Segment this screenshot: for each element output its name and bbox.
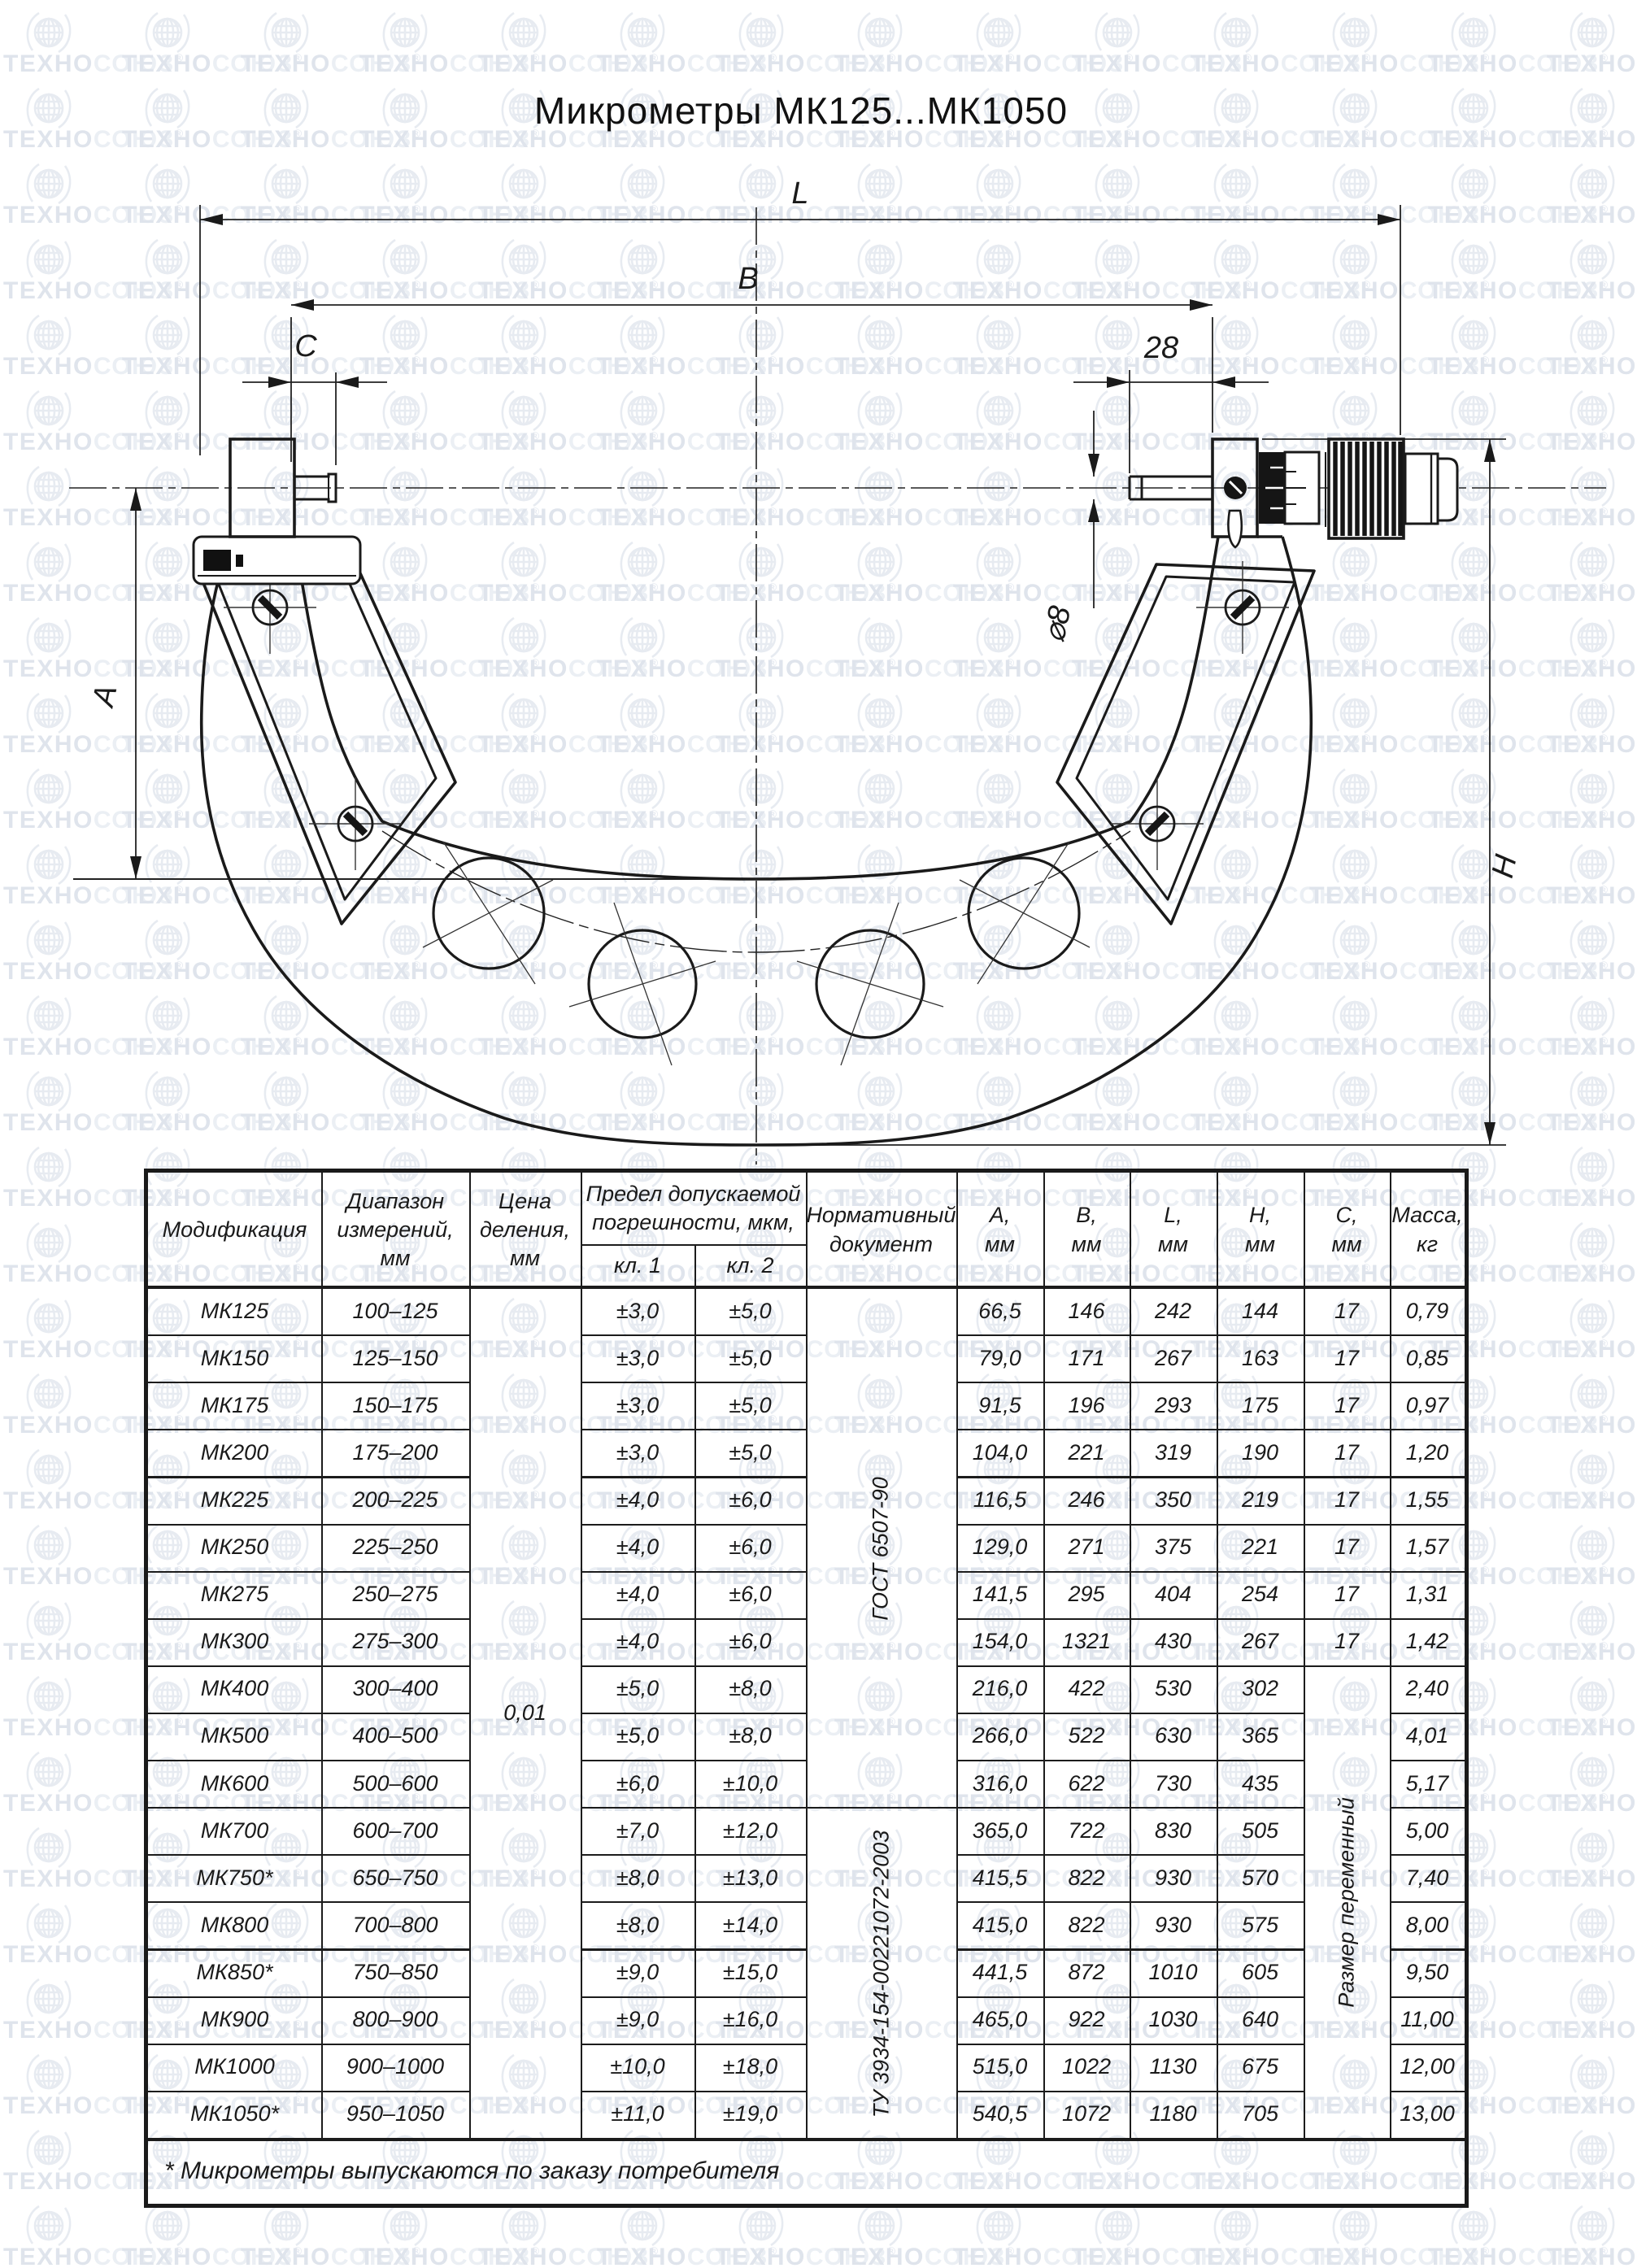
- cell-h-8: 302: [1217, 1665, 1304, 1713]
- globe-icon: [1571, 2206, 1613, 2245]
- globe-icon: [28, 1450, 70, 1489]
- globe-icon: [146, 2206, 189, 2245]
- grid-line: [956, 1571, 1304, 1573]
- cell-mod-15: МК900: [148, 1996, 321, 2044]
- globe-icon: [1571, 1450, 1613, 1489]
- cell-c-5: 17: [1304, 1524, 1390, 1571]
- grid-line: [148, 1571, 469, 1573]
- cell-mod-12: МК750*: [148, 1854, 321, 1901]
- grid-line: [1304, 1571, 1390, 1573]
- grid-line: [956, 1807, 1304, 1809]
- grid-line: [148, 2044, 469, 2045]
- dimension-A: [73, 488, 760, 879]
- cell-h-0: 144: [1217, 1287, 1304, 1334]
- cell-kl1-1: ±3,0: [581, 1334, 694, 1382]
- cell-kl2-5: ±6,0: [694, 1524, 806, 1571]
- dim-label-C: C: [294, 329, 317, 363]
- spec-table: Модификация Диапазон измерений, мм Цена …: [144, 1169, 1469, 2208]
- dimension-28: [1073, 370, 1269, 473]
- cell-kl2-7: ±6,0: [694, 1618, 806, 1665]
- grid-line: [581, 1244, 806, 1246]
- cell-l-9: 630: [1130, 1713, 1217, 1760]
- globe-icon: [977, 2206, 1020, 2245]
- cell-l-1: 267: [1130, 1334, 1217, 1382]
- header-col-b: В, мм: [1043, 1173, 1130, 1287]
- cell-l-0: 242: [1130, 1287, 1217, 1334]
- grid-line: [956, 1618, 1304, 1620]
- cell-h-17: 705: [1217, 2091, 1304, 2138]
- cell-h-3: 190: [1217, 1429, 1304, 1476]
- globe-icon: [1571, 1677, 1613, 1716]
- dim-label-dia8: ⌀8: [1037, 603, 1078, 646]
- cell-kl1-8: ±5,0: [581, 1665, 694, 1713]
- header-document: Нормативный документ: [806, 1173, 956, 1287]
- cell-kl2-10: ±10,0: [694, 1760, 806, 1807]
- watermark-text: ТЕХНОСОЮЗ®: [1547, 2017, 1637, 2044]
- grid-line: [1390, 1334, 1465, 1336]
- cell-a-16: 515,0: [956, 2044, 1043, 2091]
- cell-b-3: 221: [1043, 1429, 1130, 1476]
- cell-b-2: 196: [1043, 1382, 1130, 1429]
- watermark-text: ТЕХНОСОЮЗ®: [1547, 1639, 1637, 1665]
- dim-label-L: L: [791, 176, 808, 211]
- cell-h-6: 254: [1217, 1571, 1304, 1618]
- grid-line: [148, 1854, 469, 1856]
- cell-b-16: 1022: [1043, 2044, 1130, 2091]
- cell-mod-7: МК300: [148, 1618, 321, 1665]
- cell-l-5: 375: [1130, 1524, 1217, 1571]
- watermark-text: ТЕХНОСОЮЗ®: [1547, 1487, 1637, 1514]
- grid-line: [148, 1286, 1465, 1289]
- cell-mod-8: МК400: [148, 1665, 321, 1713]
- grid-line: [581, 1524, 806, 1526]
- globe-icon: [28, 2131, 70, 2170]
- header-col-l: L, мм: [1130, 1173, 1217, 1287]
- grid-line: [469, 1173, 471, 2138]
- cell-mass-7: 1,42: [1390, 1618, 1465, 1665]
- cell-doc-gost: ГОСТ 6507-90: [806, 1287, 956, 1810]
- cell-mass-14: 9,50: [1390, 1948, 1465, 1996]
- cell-division-value: 0,01: [469, 1287, 581, 2138]
- grid-line: [1390, 1429, 1465, 1430]
- cell-kl1-3: ±3,0: [581, 1429, 694, 1476]
- grid-line: [321, 1173, 323, 2138]
- cell-l-16: 1130: [1130, 2044, 1217, 2091]
- cell-a-8: 216,0: [956, 1665, 1043, 1713]
- cell-range-4: 200–225: [321, 1476, 469, 1523]
- cell-b-0: 146: [1043, 1287, 1130, 1334]
- cell-b-17: 1072: [1043, 2091, 1130, 2138]
- grid-line: [1390, 1996, 1465, 1998]
- grid-line: [1217, 1173, 1218, 2138]
- globe-icon: [28, 1526, 70, 1565]
- cell-b-15: 922: [1043, 1996, 1130, 2044]
- dimension-C: [242, 372, 387, 465]
- grid-line: [1304, 1173, 1305, 2138]
- cell-a-10: 316,0: [956, 1760, 1043, 1807]
- cell-h-16: 675: [1217, 2044, 1304, 2091]
- watermark-text: ТЕХНОСОЮЗ®: [1547, 1714, 1637, 1741]
- cell-h-13: 575: [1217, 1901, 1304, 1948]
- technical-drawing: Микрометры МК125...МК1050 L B: [0, 0, 1637, 1167]
- cell-mod-2: МК175: [148, 1382, 321, 1429]
- grid-line: [581, 1476, 806, 1478]
- cell-kl1-12: ±8,0: [581, 1854, 694, 1901]
- globe-icon: [621, 2206, 664, 2245]
- grid-line: [148, 1948, 469, 1950]
- grid-line: [581, 1996, 806, 1998]
- grid-line: [581, 1571, 806, 1573]
- cell-kl1-5: ±4,0: [581, 1524, 694, 1571]
- grid-line: [148, 1618, 469, 1620]
- cell-b-13: 822: [1043, 1901, 1130, 1948]
- globe-icon: [1452, 2206, 1495, 2245]
- globe-icon: [740, 2206, 782, 2245]
- cell-c-6: 17: [1304, 1571, 1390, 1618]
- grid-line: [148, 1334, 469, 1336]
- grid-line: [1390, 1571, 1465, 1573]
- grid-line: [581, 1173, 582, 2138]
- globe-icon: [1215, 2206, 1257, 2245]
- page-title: Микрометры МК125...МК1050: [534, 89, 1068, 132]
- cell-b-9: 522: [1043, 1713, 1130, 1760]
- watermark-text: ТЕХНОСОЮЗ®: [1547, 1563, 1637, 1590]
- globe-icon: [28, 1374, 70, 1413]
- header-class1: кл. 1: [581, 1244, 694, 1287]
- cell-mass-11: 5,00: [1390, 1807, 1465, 1854]
- cell-range-6: 250–275: [321, 1571, 469, 1618]
- cell-mod-1: МК150: [148, 1334, 321, 1382]
- cell-mass-17: 13,00: [1390, 2091, 1465, 2138]
- cell-mass-2: 0,97: [1390, 1382, 1465, 1429]
- grid-line: [581, 1901, 806, 1903]
- cell-kl1-9: ±5,0: [581, 1713, 694, 1760]
- cell-mass-3: 1,20: [1390, 1429, 1465, 1476]
- grid-line: [1304, 1476, 1390, 1478]
- cell-range-15: 800–900: [321, 1996, 469, 2044]
- globe-icon: [1571, 1828, 1613, 1867]
- cell-kl2-17: ±19,0: [694, 2091, 806, 2138]
- globe-icon: [1571, 1752, 1613, 1791]
- watermark-text: ТЕХНОСОЮЗ®: [1547, 1260, 1637, 1287]
- header-mass: Масса, кг: [1390, 1173, 1465, 1287]
- cell-range-16: 900–1000: [321, 2044, 469, 2091]
- cell-doc-tu: ТУ 3934-154-00221072-2003: [806, 1810, 956, 2138]
- globe-icon: [859, 2206, 901, 2245]
- cell-kl1-16: ±10,0: [581, 2044, 694, 2091]
- grid-line: [1390, 1854, 1465, 1856]
- cell-mod-3: МК200: [148, 1429, 321, 1476]
- cell-mod-10: МК600: [148, 1760, 321, 1807]
- cell-c-4: 17: [1304, 1476, 1390, 1523]
- cell-range-1: 125–150: [321, 1334, 469, 1382]
- watermark-text: ТЕХНОСОЮЗ®: [1547, 1412, 1637, 1439]
- cell-range-5: 225–250: [321, 1524, 469, 1571]
- globe-icon: [28, 1979, 70, 2018]
- dimension-L: [200, 205, 1400, 455]
- grid-line: [956, 1948, 1304, 1950]
- globe-icon: [1571, 2131, 1613, 2170]
- cell-kl2-13: ±14,0: [694, 1901, 806, 1948]
- cell-a-14: 441,5: [956, 1948, 1043, 1996]
- cell-a-6: 141,5: [956, 1571, 1043, 1618]
- cell-h-12: 570: [1217, 1854, 1304, 1901]
- cell-range-13: 700–800: [321, 1901, 469, 1948]
- cell-range-9: 400–500: [321, 1713, 469, 1760]
- cell-c-2: 17: [1304, 1382, 1390, 1429]
- dimension-H: [763, 439, 1506, 1145]
- cell-mass-9: 4,01: [1390, 1713, 1465, 1760]
- cell-a-7: 154,0: [956, 1618, 1043, 1665]
- cell-kl2-16: ±18,0: [694, 2044, 806, 2091]
- cell-kl2-4: ±6,0: [694, 1476, 806, 1523]
- cell-a-17: 540,5: [956, 2091, 1043, 2138]
- grid-line: [148, 1760, 469, 1761]
- globe-icon: [28, 1752, 70, 1791]
- watermark-text: ТЕХНОСОЮЗ®: [1547, 2244, 1637, 2268]
- cell-kl2-11: ±12,0: [694, 1807, 806, 1854]
- cell-kl2-6: ±6,0: [694, 1571, 806, 1618]
- cell-kl2-2: ±5,0: [694, 1382, 806, 1429]
- dimension-dia8: [1088, 411, 1099, 608]
- grid-line: [956, 1760, 1304, 1761]
- cell-h-4: 219: [1217, 1476, 1304, 1523]
- grid-line: [148, 1901, 469, 1903]
- cell-kl2-9: ±8,0: [694, 1713, 806, 1760]
- cell-mod-6: МК275: [148, 1571, 321, 1618]
- cell-b-6: 295: [1043, 1571, 1130, 1618]
- grid-line: [956, 1476, 1304, 1478]
- cell-c-0: 17: [1304, 1287, 1390, 1334]
- grid-line: [581, 2044, 806, 2045]
- cell-c-3: 17: [1304, 1429, 1390, 1476]
- cell-mod-14: МК850*: [148, 1948, 321, 1996]
- globe-icon: [28, 1677, 70, 1716]
- grid-line: [806, 1807, 956, 1809]
- cell-kl1-10: ±6,0: [581, 1760, 694, 1807]
- cell-a-1: 79,0: [956, 1334, 1043, 1382]
- watermark-text: ТЕХНОСОЮЗ®: [1547, 1185, 1637, 1212]
- micrometer-head: [1130, 439, 1457, 547]
- dim-label-B: B: [738, 262, 758, 296]
- cell-l-2: 293: [1130, 1382, 1217, 1429]
- cell-range-14: 750–850: [321, 1948, 469, 1996]
- cell-a-0: 66,5: [956, 1287, 1043, 1334]
- cell-kl2-1: ±5,0: [694, 1334, 806, 1382]
- grid-line: [581, 1713, 806, 1714]
- globe-icon: [1571, 1374, 1613, 1413]
- cell-mass-5: 1,57: [1390, 1524, 1465, 1571]
- grid-line: [148, 1665, 469, 1667]
- watermark-text: ТЕХНОСОЮЗ®: [1547, 1941, 1637, 1968]
- grid-line: [1390, 2044, 1465, 2045]
- globe-icon: [28, 1223, 70, 1262]
- globe-icon: [1571, 2055, 1613, 2094]
- cell-l-8: 530: [1130, 1665, 1217, 1713]
- header-error-limit: Предел допускаемой погрешности, мкм,: [581, 1173, 806, 1244]
- grid-line: [581, 1854, 806, 1856]
- grid-line: [956, 1429, 1304, 1430]
- cell-mod-9: МК500: [148, 1713, 321, 1760]
- globe-icon: [1096, 2206, 1138, 2245]
- cell-range-7: 275–300: [321, 1618, 469, 1665]
- grid-line: [1390, 1524, 1465, 1526]
- cell-b-5: 271: [1043, 1524, 1130, 1571]
- cell-b-10: 622: [1043, 1760, 1130, 1807]
- watermark-text: ТЕХНОСОЮЗ®: [1547, 1336, 1637, 1363]
- grid-line: [1304, 1429, 1390, 1430]
- cell-a-5: 129,0: [956, 1524, 1043, 1571]
- cell-kl1-4: ±4,0: [581, 1476, 694, 1523]
- heat-shield-left: [198, 564, 455, 924]
- grid-line: [148, 1713, 469, 1714]
- grid-line: [1304, 1334, 1390, 1336]
- cell-range-11: 600–700: [321, 1807, 469, 1854]
- cell-kl2-3: ±5,0: [694, 1429, 806, 1476]
- lock-lever: [1228, 511, 1241, 547]
- grid-line: [1390, 1807, 1465, 1809]
- table-footnote: * Микрометры выпускаются по заказу потре…: [148, 2138, 1473, 2204]
- grid-line: [1304, 1665, 1390, 1667]
- cell-b-7: 1321: [1043, 1618, 1130, 1665]
- cell-kl1-11: ±7,0: [581, 1807, 694, 1854]
- cell-l-10: 730: [1130, 1760, 1217, 1807]
- globe-icon: [384, 2206, 426, 2245]
- cell-mass-15: 11,00: [1390, 1996, 1465, 2044]
- cell-range-12: 650–750: [321, 1854, 469, 1901]
- cell-a-3: 104,0: [956, 1429, 1043, 1476]
- cell-c-7: 17: [1304, 1618, 1390, 1665]
- cell-range-2: 150–175: [321, 1382, 469, 1429]
- grid-line: [956, 2091, 1304, 2092]
- cell-l-15: 1030: [1130, 1996, 1217, 2044]
- globe-icon: [28, 1299, 70, 1338]
- cell-mass-4: 1,55: [1390, 1476, 1465, 1523]
- cell-kl1-2: ±3,0: [581, 1382, 694, 1429]
- header-division: Цена деления, мм: [469, 1173, 581, 1287]
- cell-mod-11: МК700: [148, 1807, 321, 1854]
- globe-icon: [1571, 1601, 1613, 1640]
- grid-line: [581, 1429, 806, 1430]
- cell-kl1-7: ±4,0: [581, 1618, 694, 1665]
- cell-kl2-14: ±15,0: [694, 1948, 806, 1996]
- ratchet: [1405, 454, 1438, 524]
- grid-line: [148, 1382, 469, 1383]
- grid-line: [694, 1244, 696, 2138]
- grid-line: [1390, 1476, 1465, 1478]
- cell-a-9: 266,0: [956, 1713, 1043, 1760]
- cell-b-4: 246: [1043, 1476, 1130, 1523]
- grid-line: [956, 2044, 1304, 2045]
- cell-mass-6: 1,31: [1390, 1571, 1465, 1618]
- cell-mass-8: 2,40: [1390, 1665, 1465, 1713]
- grid-line: [581, 1665, 806, 1667]
- grid-line: [956, 1382, 1304, 1383]
- grid-line: [581, 1334, 806, 1336]
- grid-line: [148, 1996, 469, 1998]
- globe-icon: [28, 1904, 70, 1943]
- cell-c-1: 17: [1304, 1334, 1390, 1382]
- cell-a-2: 91,5: [956, 1382, 1043, 1429]
- grid-line: [1390, 1382, 1465, 1383]
- globe-icon: [1571, 1526, 1613, 1565]
- cell-b-12: 822: [1043, 1854, 1130, 1901]
- watermark-text: ТЕХНОСОЮЗ®: [1547, 2092, 1637, 2119]
- grid-line: [956, 1665, 1304, 1667]
- globe-icon: [1571, 1223, 1613, 1262]
- globe-icon: [28, 2206, 70, 2245]
- globe-icon: [28, 1601, 70, 1640]
- cell-b-1: 171: [1043, 1334, 1130, 1382]
- cell-kl2-15: ±16,0: [694, 1996, 806, 2044]
- ratchet-cap: [1438, 459, 1457, 520]
- grid-line: [1390, 1665, 1465, 1667]
- cell-h-2: 175: [1217, 1382, 1304, 1429]
- cell-mass-0: 0,79: [1390, 1287, 1465, 1334]
- grid-line: [148, 1476, 469, 1478]
- dim-label-28: 28: [1143, 331, 1178, 365]
- cell-b-11: 722: [1043, 1807, 1130, 1854]
- cell-kl1-15: ±9,0: [581, 1996, 694, 2044]
- grid-line: [581, 1760, 806, 1761]
- cell-h-14: 605: [1217, 1948, 1304, 1996]
- header-col-a: А, мм: [956, 1173, 1043, 1287]
- cell-l-11: 830: [1130, 1807, 1217, 1854]
- cell-h-5: 221: [1217, 1524, 1304, 1571]
- grid-line: [581, 2091, 806, 2092]
- grid-line: [1390, 1760, 1465, 1761]
- cell-kl2-12: ±13,0: [694, 1854, 806, 1901]
- grid-line: [581, 1807, 806, 1809]
- cell-range-8: 300–400: [321, 1665, 469, 1713]
- grid-line: [1390, 1901, 1465, 1903]
- watermark-text: ТЕХНОСОЮЗ®: [1547, 1865, 1637, 1892]
- grid-line: [956, 1713, 1304, 1714]
- cell-range-0: 100–125: [321, 1287, 469, 1334]
- cell-l-7: 430: [1130, 1618, 1217, 1665]
- cell-a-12: 415,5: [956, 1854, 1043, 1901]
- dimension-B: [291, 299, 1213, 462]
- cell-mass-16: 12,00: [1390, 2044, 1465, 2091]
- cell-kl2-8: ±8,0: [694, 1665, 806, 1713]
- header-col-h: Н, мм: [1217, 1173, 1304, 1287]
- cell-kl2-0: ±5,0: [694, 1287, 806, 1334]
- grid-line: [581, 1618, 806, 1620]
- cell-kl1-14: ±9,0: [581, 1948, 694, 1996]
- cell-h-15: 640: [1217, 1996, 1304, 2044]
- grid-line: [956, 1334, 1304, 1336]
- grid-line: [148, 1807, 469, 1809]
- cell-kl1-0: ±3,0: [581, 1287, 694, 1334]
- cell-h-1: 163: [1217, 1334, 1304, 1382]
- cell-a-11: 365,0: [956, 1807, 1043, 1854]
- cell-h-11: 505: [1217, 1807, 1304, 1854]
- cell-mass-10: 5,17: [1390, 1760, 1465, 1807]
- cell-b-8: 422: [1043, 1665, 1130, 1713]
- cell-l-6: 404: [1130, 1571, 1217, 1618]
- cell-h-9: 365: [1217, 1713, 1304, 1760]
- cell-mass-12: 7,40: [1390, 1854, 1465, 1901]
- watermark-text: ТЕХНОСОЮЗ®: [1547, 2168, 1637, 2195]
- header-col-c: С, мм: [1304, 1173, 1390, 1287]
- grid-line: [1390, 1948, 1465, 1950]
- cell-range-17: 950–1050: [321, 2091, 469, 2138]
- cell-l-13: 930: [1130, 1901, 1217, 1948]
- globe-icon: [28, 1828, 70, 1867]
- grid-line: [806, 1173, 808, 2138]
- datasheet-page: ТЕХНОСОЮЗ®ТЕХНОСОЮЗ®ТЕХНОСОЮЗ®ТЕХНОСОЮЗ®…: [0, 0, 1637, 2268]
- globe-icon: [28, 2055, 70, 2094]
